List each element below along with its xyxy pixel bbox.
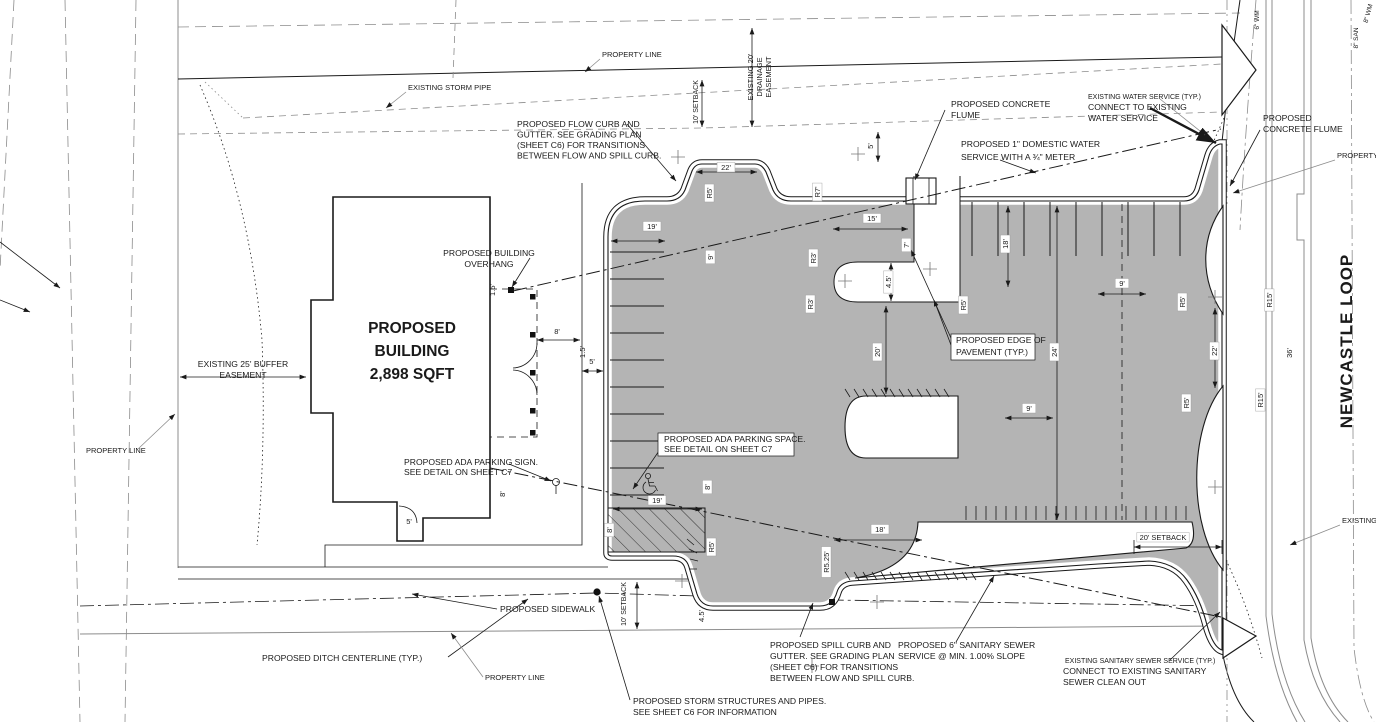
dim-label: 20' SETBACK [1137, 533, 1189, 543]
svg-text:PROPOSEDBUILDING2,898 SQFT: PROPOSEDBUILDING2,898 SQFT [368, 320, 456, 383]
dim-label: 5' [406, 517, 412, 526]
svg-text:R3': R3' [809, 252, 818, 264]
svg-text:6" WM: 6" WM [1254, 10, 1261, 29]
dim-label: 24' [1050, 343, 1060, 361]
top-boundary-lines [178, 0, 1240, 134]
dim-label: R5.25' [822, 547, 832, 578]
svg-text:4.5': 4.5' [697, 610, 706, 622]
property-line-south [80, 626, 1222, 634]
property-line-left: PROPERTY LINE [86, 446, 146, 455]
svg-text:R15': R15' [1265, 292, 1274, 308]
svg-text:5': 5' [406, 517, 412, 526]
property-line-north [178, 57, 1222, 79]
svg-text:PROPERTY LINE: PROPERTY LINE [86, 446, 146, 455]
svg-text:8': 8' [554, 327, 560, 336]
ada-aisle-hatch [608, 508, 705, 552]
dim-label: 8' [703, 480, 713, 494]
sidewalk-note: PROPOSED SIDEWALK [500, 604, 595, 614]
svg-text:R3': R3' [806, 298, 815, 310]
concrete-flume-note-mid: PROPOSED CONCRETEFLUME [951, 99, 1051, 120]
water-main-line [1240, 0, 1256, 230]
dim-label: R5' [1178, 293, 1188, 311]
svg-text:R5': R5' [1178, 296, 1187, 308]
water-meter-marker [508, 287, 514, 293]
dim-label: 19' [643, 222, 661, 232]
svg-text:EXISTING STORM PIPE: EXISTING STORM PIPE [408, 83, 491, 92]
wm-6-label: 6" WM [1254, 10, 1261, 29]
svg-text:9': 9' [1026, 404, 1032, 413]
svg-text:20' SETBACK: 20' SETBACK [1140, 533, 1187, 542]
svg-text:7': 7' [902, 242, 911, 248]
existing-water-service-label: EXISTING WATER SERVICE (TYP.) [1088, 94, 1201, 101]
svg-text:R5': R5' [707, 541, 716, 553]
ditch-centerline [80, 593, 1222, 606]
leader-line [0, 242, 60, 288]
svg-text:PROPOSED DITCH CENTERLINE (TYP: PROPOSED DITCH CENTERLINE (TYP.) [262, 653, 422, 663]
svg-text:8" WM: 8" WM [1363, 3, 1375, 23]
svg-text:R5.25': R5.25' [822, 551, 831, 573]
dim-label: 22' [1210, 342, 1220, 360]
dim-label: 5' [866, 143, 875, 149]
svg-text:22': 22' [721, 163, 731, 172]
concrete-flume-note-right: PROPOSEDCONCRETE FLUME [1263, 113, 1343, 134]
property-line-bottom: PROPERTY LINE [485, 673, 545, 682]
flow-curb-note: PROPOSED FLOW CURB ANDGUTTER. SEE GRADIN… [517, 119, 661, 161]
storm-structure-marker [593, 588, 600, 595]
svg-text:PROPOSED 6" SANITARY SEWERSERV: PROPOSED 6" SANITARY SEWERSERVICE @ MIN.… [898, 640, 1035, 661]
svg-text:10' SETBACK: 10' SETBACK [621, 582, 628, 626]
dim-label: 36' [1285, 348, 1294, 358]
svg-text:PROPOSED SIDEWALK: PROPOSED SIDEWALK [500, 604, 595, 614]
site-plan-drawing: PROPERTY LINEEXISTING STORM PIPEPROPOSED… [0, 0, 1376, 722]
dim-label: 9' [706, 250, 716, 264]
dim-label: 9' [1115, 279, 1129, 289]
buffer-dotted-line [200, 85, 263, 545]
svg-text:9': 9' [1119, 279, 1125, 288]
dim-label: R5' [707, 538, 717, 556]
dim-label: 4.5' [697, 610, 706, 622]
inlet-marker [829, 599, 835, 605]
svg-text:8': 8' [498, 491, 507, 497]
leader-line [0, 300, 30, 312]
dim-label: 8' [554, 327, 560, 336]
edge-of-pavement-note: PROPOSED EDGE OFPAVEMENT (TYP.) [951, 334, 1046, 360]
dim-label: 1.5' [488, 284, 497, 296]
svg-text:10' SETBACK: 10' SETBACK [693, 80, 700, 124]
dim-label: 8' [498, 491, 507, 497]
svg-text:18': 18' [875, 525, 885, 534]
svg-text:22': 22' [1210, 346, 1219, 356]
svg-text:5': 5' [589, 357, 595, 366]
dim-label: 19' [648, 496, 666, 506]
sidewalk-lines [178, 567, 700, 579]
svg-text:EXISTING 20'DRAINAGEEASEMENT: EXISTING 20'DRAINAGEEASEMENT [746, 53, 773, 100]
dim-label: 20' [873, 343, 883, 361]
svg-text:R5': R5' [705, 187, 714, 199]
svg-text:EXISTING SANITARY SEWER SERVIC: EXISTING SANITARY SEWER SERVICE (TYP.) [1065, 658, 1215, 665]
dim-label: 8' [605, 523, 615, 537]
dim-label: R3' [809, 249, 819, 267]
street-name: NEWCASTLE LOOP [1337, 254, 1356, 429]
dim-label: 18' [1001, 235, 1011, 253]
svg-text:1.5': 1.5' [488, 284, 497, 296]
svg-text:36': 36' [1285, 348, 1294, 358]
svg-text:PROPOSEDCONCRETE FLUME: PROPOSEDCONCRETE FLUME [1263, 113, 1343, 134]
drainage-easement-line [178, 13, 1240, 27]
ditch-note: PROPOSED DITCH CENTERLINE (TYP.) [262, 653, 422, 663]
svg-text:8': 8' [703, 484, 712, 490]
island-lower-finger [845, 396, 958, 458]
existing-storm-pipe-line [243, 64, 1222, 118]
dim-label: 9' [1022, 404, 1036, 414]
dim-label: R3' [806, 295, 816, 313]
san-8-label: 8" SAN [1353, 27, 1360, 48]
svg-text:PROPOSED 1" DOMESTIC WATERSERV: PROPOSED 1" DOMESTIC WATERSERVICE WITH A… [961, 139, 1100, 162]
setback-10-top-label: 10' SETBACK [693, 80, 700, 124]
ada-sign-symbol [553, 479, 560, 495]
svg-text:R5': R5' [959, 299, 968, 311]
spill-curb-note: PROPOSED SPILL CURB ANDGUTTER. SEE GRADI… [770, 640, 914, 683]
existing-curb-label: EXISTING CURB [1342, 516, 1376, 525]
svg-text:PROPOSED CONCRETEFLUME: PROPOSED CONCRETEFLUME [951, 99, 1051, 120]
setback-10-bottom-label: 10' SETBACK [621, 582, 628, 626]
dim-label: R5' [705, 184, 715, 202]
svg-text:NEWCASTLE LOOP: NEWCASTLE LOOP [1337, 254, 1356, 429]
property-line-top: PROPERTY LINE [602, 50, 662, 59]
dim-label: 15' [863, 214, 881, 224]
svg-text:R15': R15' [1256, 392, 1265, 408]
svg-text:PROPOSED FLOW CURB ANDGUTTER.: PROPOSED FLOW CURB ANDGUTTER. SEE GRADIN… [517, 119, 661, 161]
ada-space-note: PROPOSED ADA PARKING SPACE.SEE DETAIL ON… [658, 433, 806, 456]
dim-label: 1.5' [578, 346, 587, 358]
concrete-flume-triangle-top [1222, 25, 1256, 115]
svg-text:15': 15' [867, 214, 877, 223]
svg-text:CONNECT TO EXISTING SANITARYSE: CONNECT TO EXISTING SANITARYSEWER CLEAN … [1063, 666, 1207, 687]
svg-text:1.5': 1.5' [578, 346, 587, 358]
svg-text:PROPERTY LINE: PROPERTY LINE [485, 673, 545, 682]
building-overhang [490, 289, 537, 437]
svg-text:EXISTING WATER SERVICE (TYP.): EXISTING WATER SERVICE (TYP.) [1088, 94, 1201, 101]
property-line-right: PROPERTY LINE [1337, 151, 1376, 160]
svg-text:24': 24' [1050, 347, 1059, 357]
svg-text:5': 5' [866, 143, 875, 149]
dim-label: R5' [1182, 394, 1192, 412]
dim-label: 5' [589, 357, 595, 366]
dim-label: R7' [813, 183, 823, 201]
svg-text:20': 20' [873, 347, 882, 357]
dim-label: R15' [1256, 389, 1266, 411]
svg-text:R7': R7' [813, 186, 822, 198]
dim-label: 7' [902, 238, 912, 252]
svg-text:EXISTING CURB: EXISTING CURB [1342, 516, 1376, 525]
double-door-arcs [513, 343, 537, 395]
dim-label: R5' [959, 296, 969, 314]
dim-label: R15' [1265, 289, 1275, 311]
setback-line-north [178, 112, 1222, 134]
storm-pipe-bend [205, 82, 243, 118]
svg-text:8" SAN: 8" SAN [1353, 27, 1360, 48]
dim-label: 22' [717, 163, 735, 173]
svg-text:8': 8' [605, 527, 614, 533]
svg-text:PROPERTY LINE: PROPERTY LINE [1337, 151, 1376, 160]
building-label: PROPOSEDBUILDING2,898 SQFT [368, 320, 456, 383]
connect-sanitary-note: CONNECT TO EXISTING SANITARYSEWER CLEAN … [1063, 666, 1207, 687]
svg-text:19': 19' [652, 496, 662, 505]
svg-text:PROPERTY LINE: PROPERTY LINE [602, 50, 662, 59]
svg-text:19': 19' [647, 222, 657, 231]
existing-sanitary-label: EXISTING SANITARY SEWER SERVICE (TYP.) [1065, 658, 1215, 665]
domestic-water-note: PROPOSED 1" DOMESTIC WATERSERVICE WITH A… [961, 139, 1100, 162]
storm-structures-note: PROPOSED STORM STRUCTURES AND PIPES.SEE … [633, 696, 826, 717]
svg-text:18': 18' [1001, 239, 1010, 249]
concrete-flume-triangle-bottom [1223, 618, 1256, 658]
svg-text:4.5': 4.5' [884, 276, 893, 288]
sanitary-sewer-note: PROPOSED 6" SANITARY SEWERSERVICE @ MIN.… [898, 640, 1035, 661]
svg-text:R5': R5' [1182, 397, 1191, 409]
drainage-easement-label: EXISTING 20'DRAINAGEEASEMENT [746, 53, 773, 100]
svg-text:9': 9' [706, 254, 715, 260]
wm-8-corner-label: 8" WM [1363, 3, 1375, 23]
existing-storm-pipe-label: EXISTING STORM PIPE [408, 83, 491, 92]
svg-text:PROPOSED SPILL CURB ANDGUTTER.: PROPOSED SPILL CURB ANDGUTTER. SEE GRADI… [770, 640, 914, 683]
dim-label: 18' [871, 525, 889, 535]
dim-label: 4.5' [884, 271, 894, 293]
svg-text:PROPOSED STORM STRUCTURES AND: PROPOSED STORM STRUCTURES AND PIPES.SEE … [633, 696, 826, 717]
